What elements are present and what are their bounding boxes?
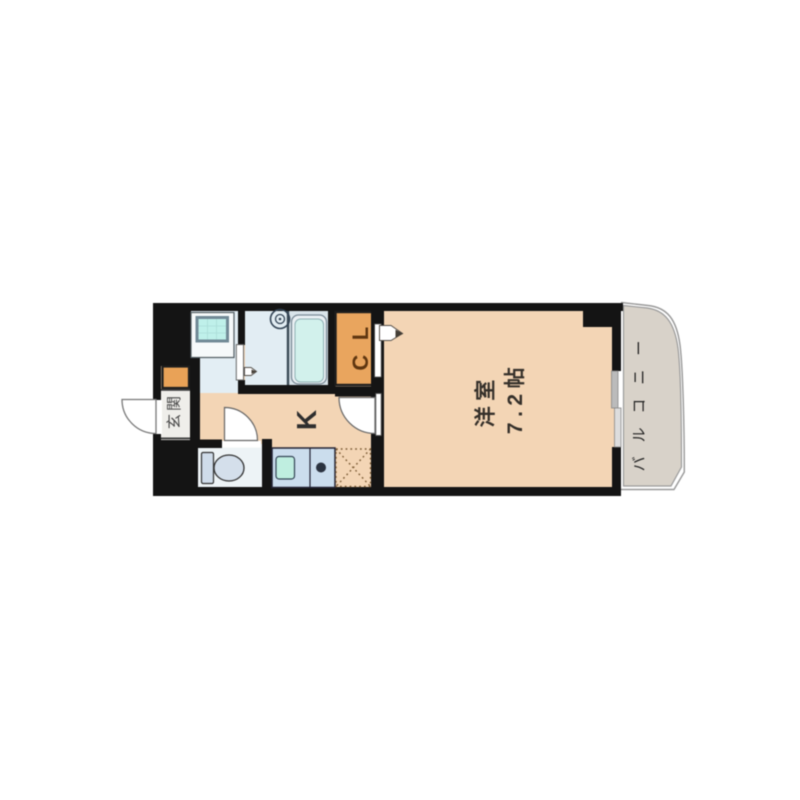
svg-text:バルコニー: バルコニー: [631, 327, 648, 472]
svg-text:K: K: [291, 410, 322, 430]
svg-text:洋室: 洋室: [474, 374, 498, 427]
svg-text:CL: CL: [348, 312, 373, 370]
svg-text:玄関: 玄関: [166, 393, 183, 429]
svg-text:7.2帖: 7.2帖: [504, 362, 527, 434]
